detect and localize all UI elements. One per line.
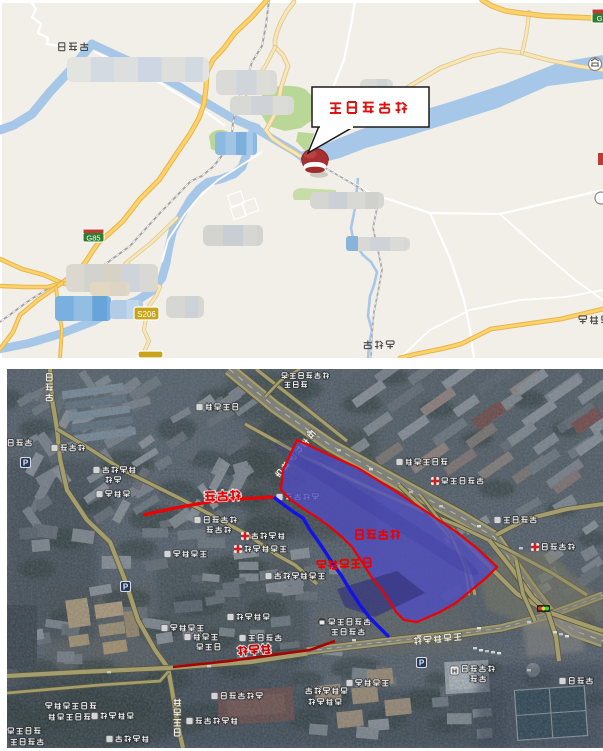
svg-text:S206: S206 xyxy=(137,310,156,319)
svg-text:G85: G85 xyxy=(86,234,100,243)
svg-text:G: G xyxy=(597,14,603,23)
